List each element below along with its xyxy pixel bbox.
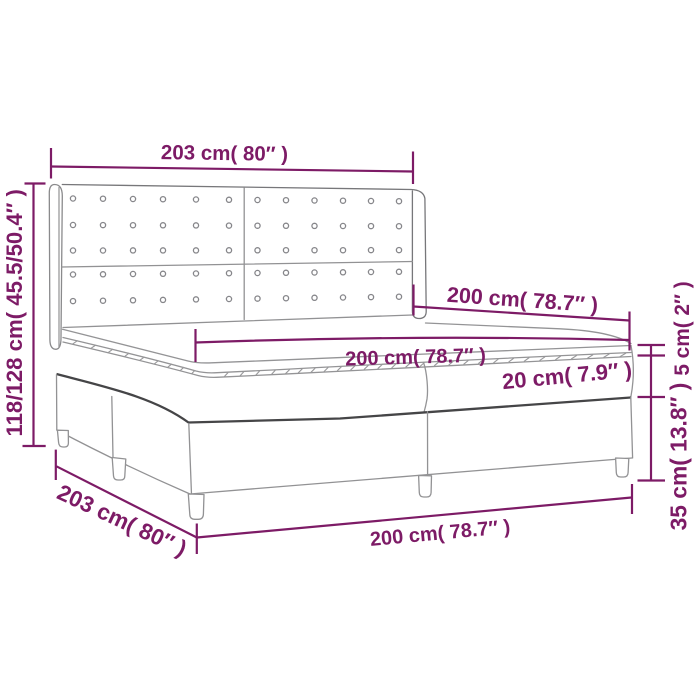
svg-text:118/128 cm( 45.5/50.4″ ): 118/128 cm( 45.5/50.4″ ) <box>2 189 27 436</box>
svg-text:203 cm( 80″ ): 203 cm( 80″ ) <box>161 141 289 166</box>
svg-text:200 cm( 78.7″ ): 200 cm( 78.7″ ) <box>345 345 486 371</box>
svg-text:35 cm( 13.8″ ): 35 cm( 13.8″ ) <box>666 383 692 531</box>
svg-text:5 cm( 2″ ): 5 cm( 2″ ) <box>671 281 694 375</box>
